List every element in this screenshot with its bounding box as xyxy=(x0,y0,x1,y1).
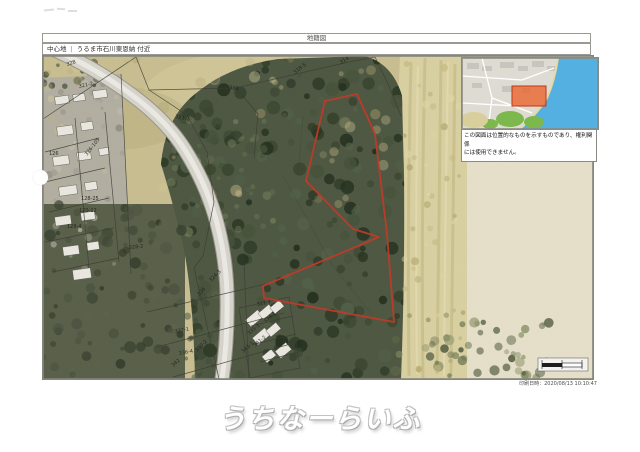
center-label: 中心地 xyxy=(47,45,67,53)
punch-hole-artifact xyxy=(33,170,48,185)
map-type-title: 地籍図 xyxy=(42,33,591,43)
center-address: うるま市石川東恩納 付近 xyxy=(77,45,151,53)
header-separator: | xyxy=(71,45,73,53)
scanned-cadastral-document: 地籍図 中心地|うるま市石川東恩納 付近 xyxy=(0,0,640,452)
inset-disclaimer-line1: この図面は位置的なものを示すものであり、権利関係 xyxy=(464,132,594,149)
print-datetime: 印刷日時：2020/08/13 10:10:47 xyxy=(420,380,597,387)
location-inset: この図面は位置的なものを示すものであり、権利関係 には使用できません。 xyxy=(461,57,597,162)
inset-highlight-rect xyxy=(512,86,546,106)
site-watermark: うちなーらいふ xyxy=(0,397,640,436)
location-inset-map xyxy=(461,57,599,130)
inset-disclaimer-line2: には使用できません。 xyxy=(464,149,594,158)
scan-smudge xyxy=(44,7,78,16)
map-center-header: 中心地|うるま市石川東恩納 付近 xyxy=(42,43,591,55)
inset-disclaimer: この図面は位置的なものを示すものであり、権利関係 には使用できません。 xyxy=(461,130,597,162)
